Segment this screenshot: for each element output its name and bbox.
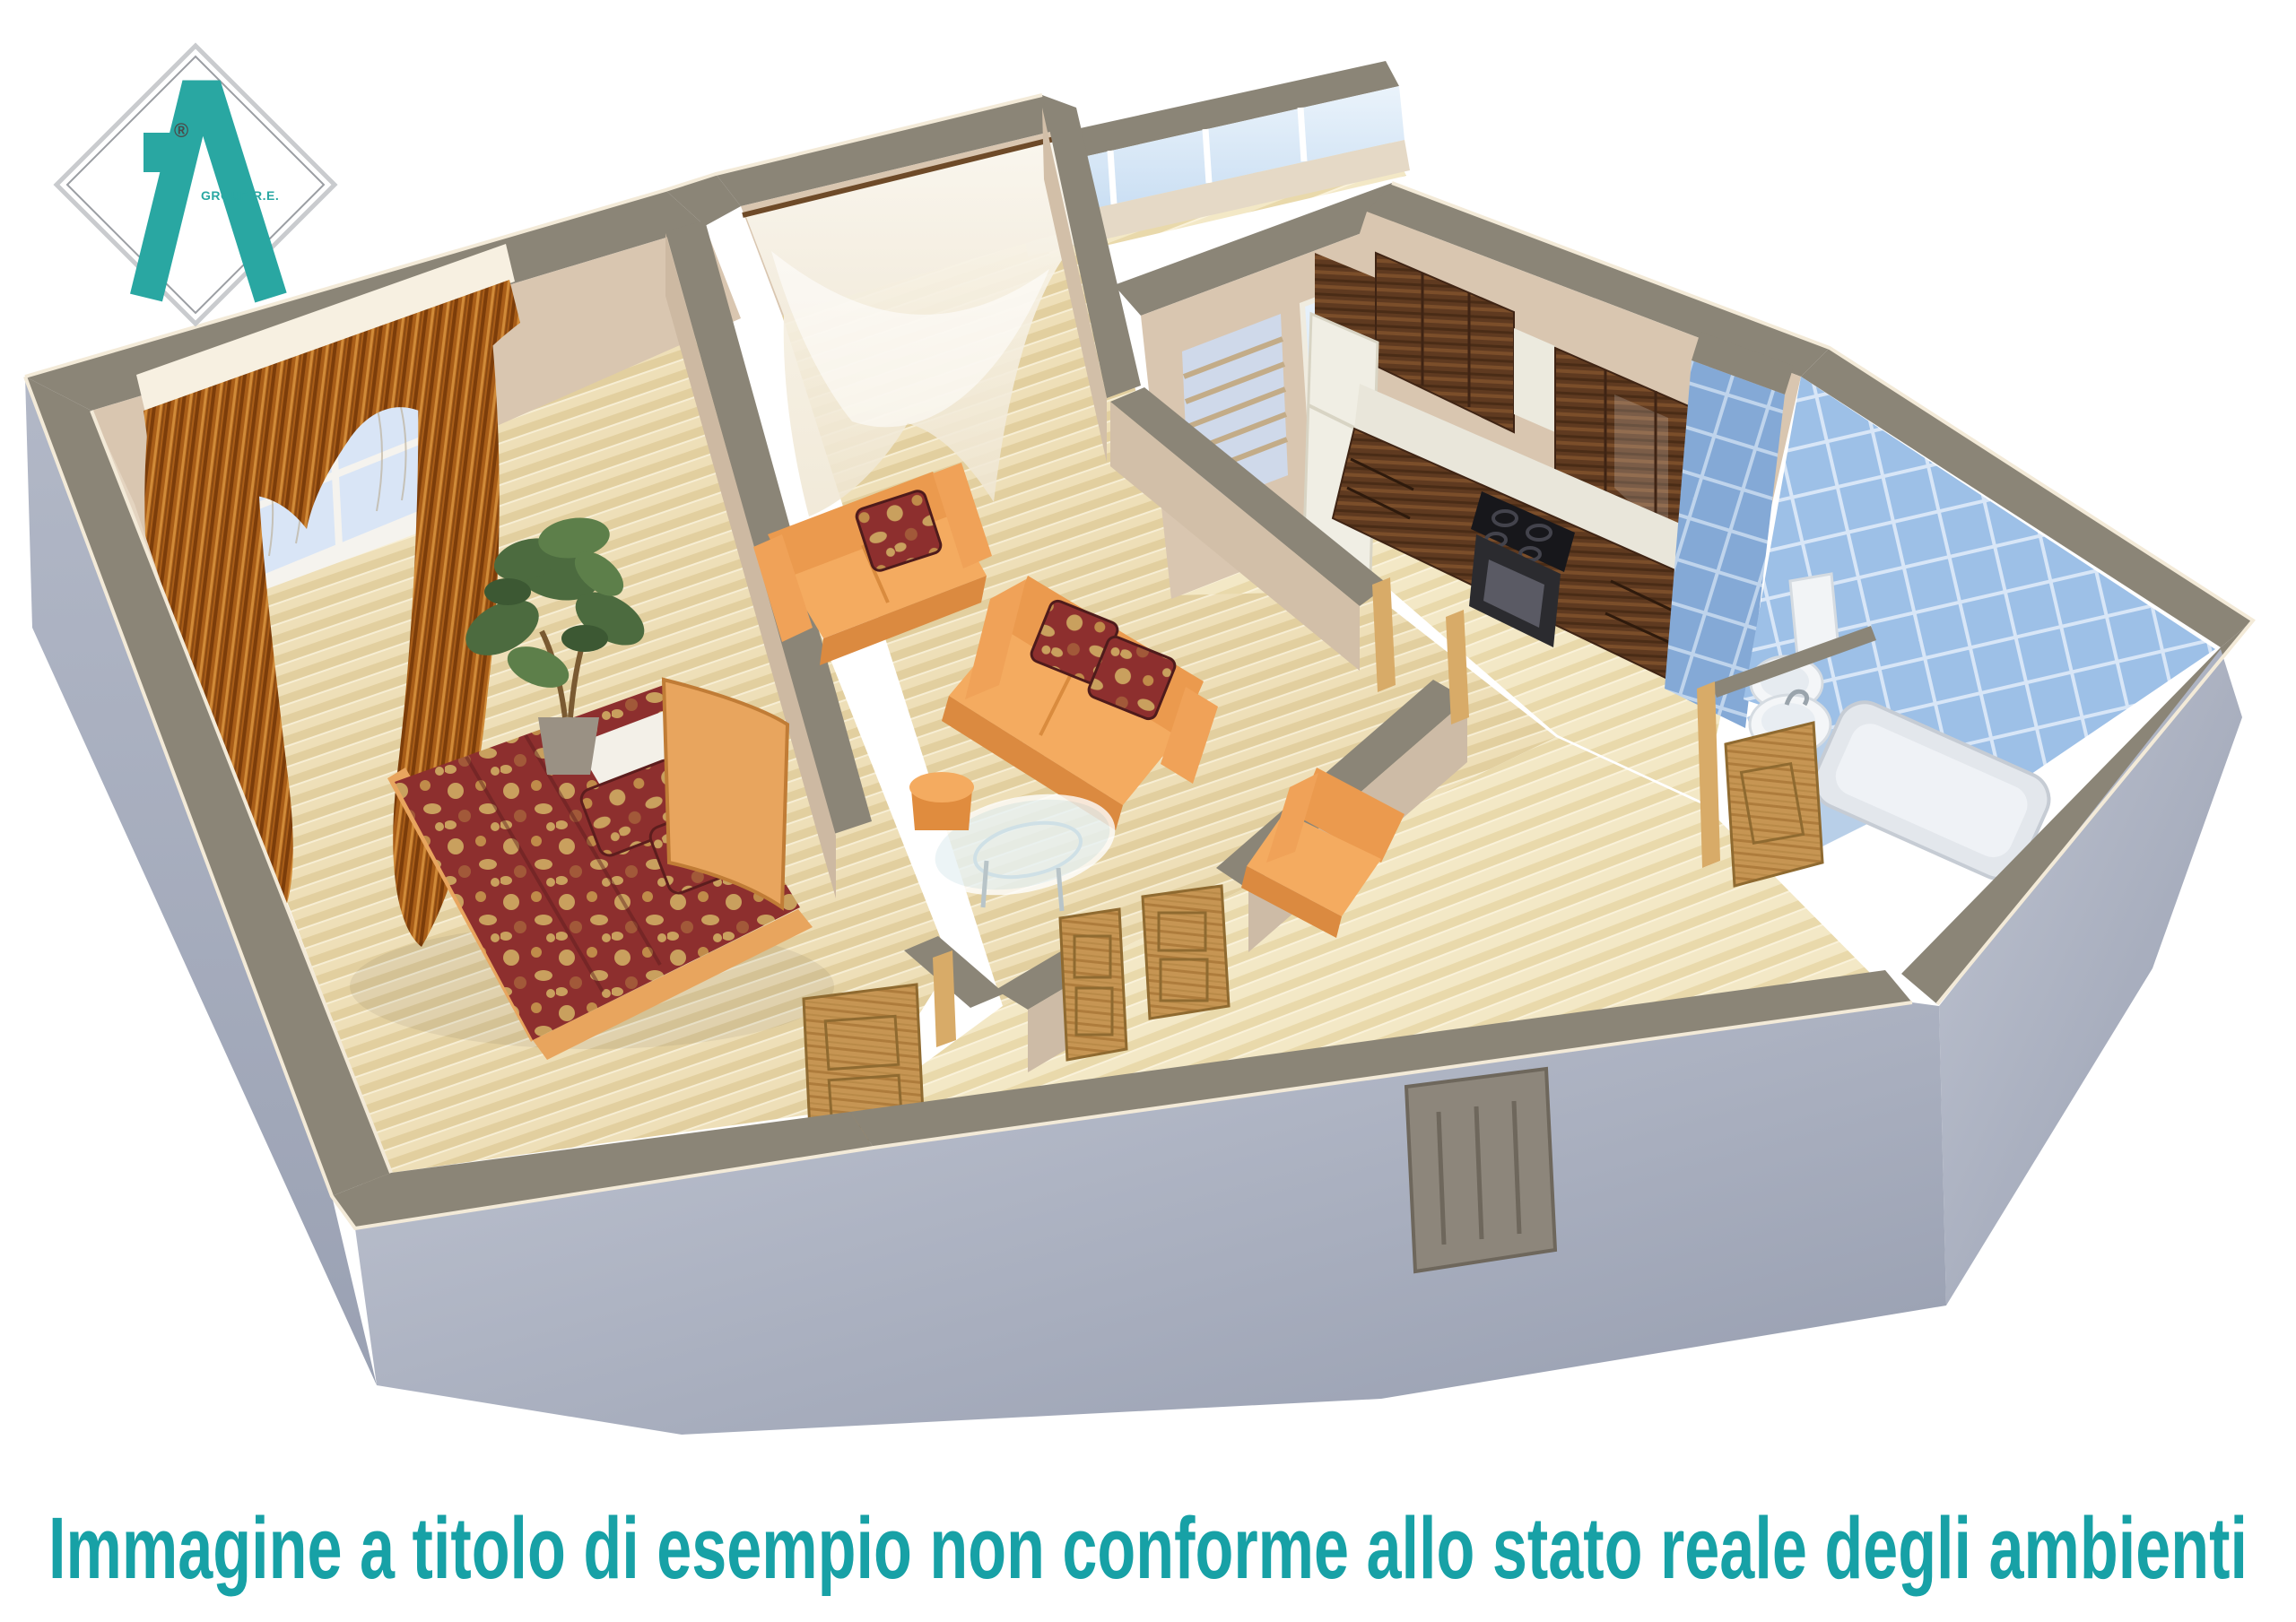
range-hood: [1514, 328, 1555, 432]
logo-brand-text: GROUP R.E.: [201, 188, 279, 203]
entry-door: [1406, 1069, 1555, 1271]
logo-letter-a-notch: [143, 133, 172, 172]
disclaimer-caption: Immagine a titolo di esempio non conform…: [48, 1499, 2248, 1597]
living-double-door-left: [1060, 909, 1126, 1060]
living-double-door-right: [1143, 886, 1229, 1019]
brand-logo: ® GROUP R.E.: [57, 46, 335, 324]
floor-plan-image: ® GROUP R.E. Immagine a titolo di esempi…: [0, 0, 2296, 1622]
logo-registered-mark: ®: [174, 119, 189, 142]
real-estate-render-page: ® GROUP R.E. Immagine a titolo di esempi…: [0, 0, 2296, 1622]
ottoman: [909, 772, 974, 830]
